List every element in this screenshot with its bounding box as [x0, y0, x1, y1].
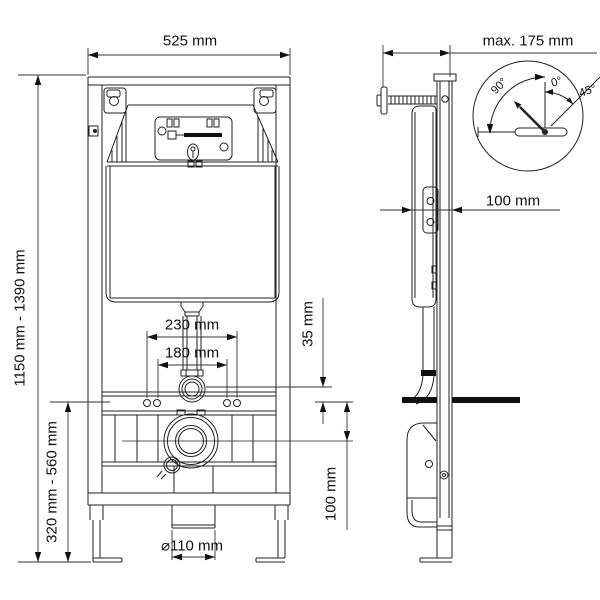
dim-frame-depth: 100 mm: [486, 194, 540, 209]
dim-outlet-height-range: 320 mm - 560 mm: [45, 421, 60, 543]
dim-fixing-width-inner: 180 mm: [165, 346, 219, 361]
dim-wall-distance: max. 175 mm: [483, 34, 574, 49]
drawing-linework: [0, 0, 600, 600]
dim-frame-width: 525 mm: [163, 34, 217, 49]
dim-drain-center-offset: 100 mm: [324, 467, 339, 521]
technical-drawing: 525 mm 1150 mm - 1390 mm 320 mm - 560 mm…: [0, 0, 600, 600]
dim-fixing-width-outer: 230 mm: [165, 318, 219, 333]
dim-height-range: 1150 mm - 1390 mm: [13, 249, 28, 386]
dim-drain-diameter: ⌀110 mm: [161, 539, 223, 554]
dim-flush-pipe-offset: 35 mm: [301, 301, 316, 347]
